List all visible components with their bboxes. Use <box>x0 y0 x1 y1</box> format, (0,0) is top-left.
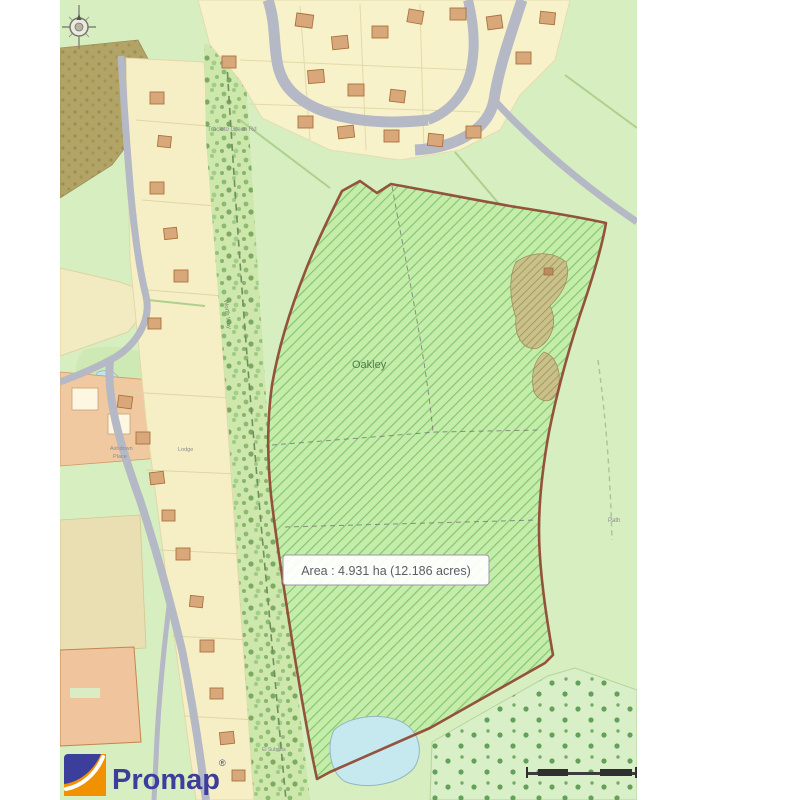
house <box>117 395 133 409</box>
house <box>427 133 443 147</box>
house <box>164 227 178 239</box>
house <box>516 52 531 64</box>
small-building <box>544 268 553 275</box>
house <box>148 318 161 329</box>
promap-trademark: ® <box>219 758 226 768</box>
house <box>539 11 555 25</box>
estate-label-1: Ashdown <box>110 446 133 452</box>
house <box>232 770 245 781</box>
house <box>372 26 388 38</box>
house <box>384 130 399 142</box>
promap-logo-text: Promap <box>112 764 220 796</box>
house <box>298 116 313 128</box>
house <box>348 84 364 96</box>
estate-label-3: Lodge <box>178 447 193 453</box>
house <box>157 135 171 147</box>
house <box>176 548 190 560</box>
house <box>337 125 354 139</box>
house <box>331 35 348 50</box>
house <box>136 432 150 444</box>
area-label-text: Area : 4.931 ha (12.186 acres) <box>301 564 471 578</box>
map-content: Oakley Track to Green Rd El Sub Sta Path… <box>60 0 637 800</box>
house <box>389 89 405 103</box>
house <box>486 15 503 30</box>
house <box>308 69 325 83</box>
area-annotation[interactable]: Area : 4.931 ha (12.186 acres) <box>283 555 489 585</box>
house <box>210 688 223 699</box>
path-label: Path <box>608 518 620 524</box>
parcel-place-label: Oakley <box>352 359 387 371</box>
estate-label-2: Place <box>113 454 127 460</box>
house <box>219 731 234 744</box>
house <box>149 471 164 485</box>
building <box>72 388 98 410</box>
house <box>189 595 203 607</box>
building-court <box>70 688 100 698</box>
map-canvas[interactable]: Oakley Track to Green Rd El Sub Sta Path… <box>0 0 800 800</box>
house <box>222 56 236 68</box>
house <box>174 270 188 282</box>
house <box>295 13 314 28</box>
substation-label: El Sub Sta <box>262 747 286 753</box>
field-tan <box>60 515 146 652</box>
house <box>162 510 175 521</box>
house <box>200 640 214 652</box>
track-label: Track to Green Rd <box>207 127 256 133</box>
house <box>407 9 424 24</box>
promap-export-page: Oakley Track to Green Rd El Sub Sta Path… <box>0 0 800 800</box>
house <box>466 126 481 138</box>
house <box>450 8 466 20</box>
house <box>150 92 164 104</box>
house <box>150 182 164 194</box>
